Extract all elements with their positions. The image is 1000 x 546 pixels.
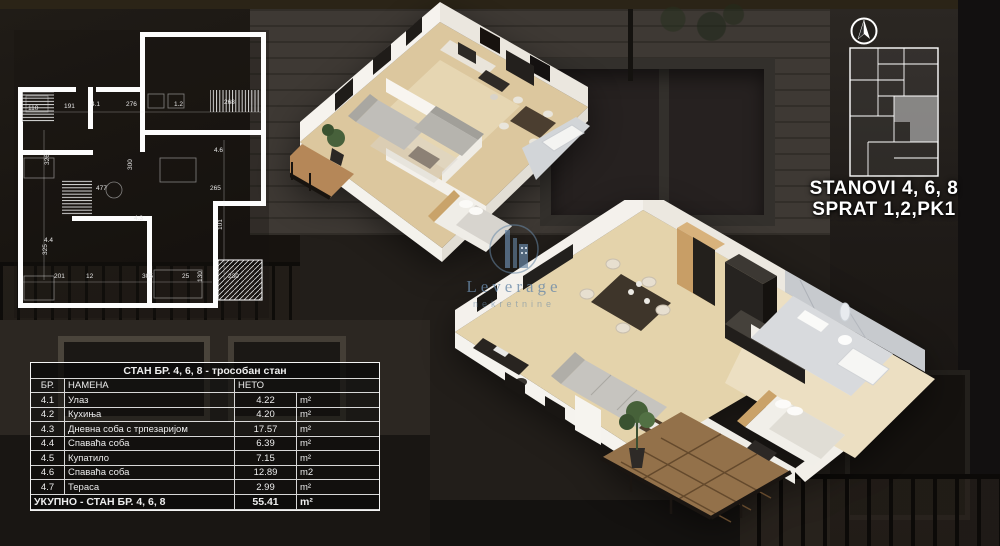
row-area: 2.99 bbox=[235, 480, 297, 495]
svg-text:305: 305 bbox=[142, 273, 153, 280]
svg-text:4.6: 4.6 bbox=[214, 147, 223, 154]
plan-balcony-hatch bbox=[218, 260, 262, 300]
col-header-name: НАМЕНА bbox=[65, 379, 235, 394]
row-num: 4.7 bbox=[31, 480, 65, 495]
svg-text:25: 25 bbox=[182, 273, 190, 280]
isometric-render-bottom bbox=[425, 200, 950, 546]
svg-text:4.4: 4.4 bbox=[44, 237, 53, 244]
svg-text:110: 110 bbox=[28, 105, 39, 112]
row-unit: m2 bbox=[297, 466, 379, 481]
svg-text:12: 12 bbox=[86, 273, 94, 280]
unit-label-line2: SPRAT 1,2,PK1 bbox=[800, 199, 968, 220]
row-area: 4.22 bbox=[235, 393, 297, 408]
row-num: 4.1 bbox=[31, 393, 65, 408]
row-unit: m² bbox=[297, 480, 379, 495]
row-area: 17.57 bbox=[235, 422, 297, 437]
svg-text:101: 101 bbox=[217, 219, 224, 230]
svg-text:265: 265 bbox=[210, 185, 221, 192]
svg-text:230: 230 bbox=[228, 273, 239, 280]
svg-text:1.2: 1.2 bbox=[174, 101, 183, 108]
row-area: 6.39 bbox=[235, 437, 297, 452]
room-areas-table: СТАН БР. 4, 6, 8 - трособан стан БР. НАМ… bbox=[30, 362, 380, 511]
real-estate-flyer: 110 191 4.1 276 1.2 268 477 4.3 4.6 265 … bbox=[0, 0, 1000, 546]
row-num: 4.6 bbox=[31, 466, 65, 481]
row-name: Купатило bbox=[65, 451, 235, 466]
svg-text:4.1: 4.1 bbox=[91, 101, 100, 108]
technical-floor-plan: 110 191 4.1 276 1.2 268 477 4.3 4.6 265 … bbox=[14, 30, 269, 318]
unit-label: STANOVI 4, 6, 8 SPRAT 1,2,PK1 bbox=[800, 178, 968, 220]
col-header-num: БР. bbox=[31, 379, 65, 394]
unit-label-line1: STANOVI 4, 6, 8 bbox=[800, 178, 968, 199]
row-num: 4.3 bbox=[31, 422, 65, 437]
row-name: Спаваћа соба bbox=[65, 466, 235, 481]
svg-text:326: 326 bbox=[44, 154, 51, 165]
table-title: СТАН БР. 4, 6, 8 - трособан стан bbox=[31, 363, 379, 379]
total-label: УКУПНО - СТАН БР. 4, 6, 8 bbox=[31, 495, 235, 511]
svg-text:268: 268 bbox=[224, 99, 235, 106]
row-num: 4.2 bbox=[31, 408, 65, 423]
row-name: Тераса bbox=[65, 480, 235, 495]
north-arrow-icon bbox=[849, 16, 879, 46]
row-num: 4.4 bbox=[31, 437, 65, 452]
location-mini-plan bbox=[848, 46, 940, 178]
svg-text:300: 300 bbox=[127, 159, 134, 170]
facade-plants bbox=[640, 0, 750, 48]
row-unit: m² bbox=[297, 422, 379, 437]
row-area: 12.89 bbox=[235, 466, 297, 481]
row-name: Дневна соба с трпезаријом bbox=[65, 422, 235, 437]
svg-text:325: 325 bbox=[42, 244, 49, 255]
drain-pipe bbox=[628, 9, 633, 81]
col-header-area: НЕТО bbox=[235, 379, 379, 394]
row-unit: m² bbox=[297, 408, 379, 423]
row-area: 4.20 bbox=[235, 408, 297, 423]
row-unit: m² bbox=[297, 437, 379, 452]
svg-text:477: 477 bbox=[96, 185, 107, 192]
row-area: 7.15 bbox=[235, 451, 297, 466]
total-area: 55.41 bbox=[235, 495, 297, 511]
row-unit: m² bbox=[297, 393, 379, 408]
row-unit: m² bbox=[297, 451, 379, 466]
svg-text:130: 130 bbox=[197, 271, 204, 282]
row-name: Кухиња bbox=[65, 408, 235, 423]
svg-text:4.3: 4.3 bbox=[134, 215, 143, 222]
row-name: Спаваћа соба bbox=[65, 437, 235, 452]
total-unit: m² bbox=[297, 495, 379, 511]
row-num: 4.5 bbox=[31, 451, 65, 466]
svg-text:191: 191 bbox=[64, 103, 75, 110]
row-name: Улаз bbox=[65, 393, 235, 408]
svg-text:201: 201 bbox=[54, 273, 65, 280]
svg-text:276: 276 bbox=[126, 101, 137, 108]
